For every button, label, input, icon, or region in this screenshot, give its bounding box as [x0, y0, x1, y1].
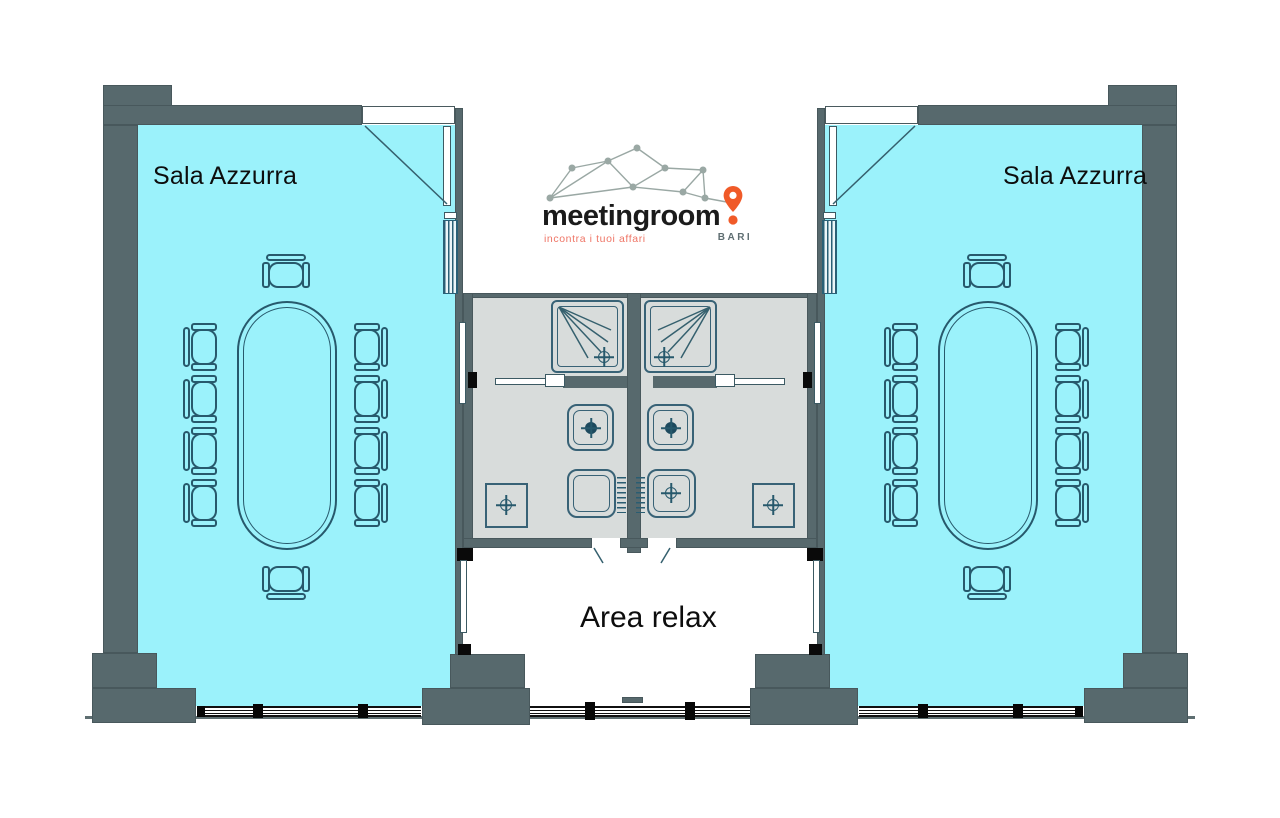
- door-jamb: [458, 644, 471, 655]
- chair: [183, 325, 223, 369]
- window-mullion: [685, 702, 695, 720]
- hatch-marks: [617, 477, 626, 513]
- bathroom-divider-wall: [627, 293, 641, 553]
- window-center: [530, 706, 750, 717]
- door-opening-right-room: [825, 106, 918, 124]
- window-left: [197, 706, 421, 717]
- chair: [884, 325, 924, 369]
- shower-drain-icon: [598, 351, 610, 363]
- door-opening-left-room: [362, 106, 455, 124]
- bathroom-partition-left: [563, 376, 627, 388]
- pillar-bottom-right: [1123, 653, 1188, 688]
- shower-drain-icon: [658, 351, 670, 363]
- sliding-door-left-panel: [545, 374, 565, 387]
- chair: [965, 254, 1009, 294]
- pillar-bottom-center-left: [450, 654, 525, 688]
- door-leaf-bath-right: [814, 322, 821, 404]
- wall-top-left: [103, 105, 362, 125]
- chair: [348, 429, 388, 473]
- floor-drain-icon: [500, 499, 512, 511]
- bathroom-wall-bottom: [620, 538, 648, 548]
- shower-right: [644, 300, 717, 373]
- pillar-bottom-center-right: [755, 654, 830, 688]
- door-jamb: [809, 644, 822, 655]
- oval-table-left-room: [237, 301, 337, 550]
- location-pin-icon: [724, 186, 743, 225]
- shower-left: [551, 300, 624, 373]
- wall-right: [1142, 125, 1177, 653]
- washbasin-left: [567, 469, 616, 518]
- chair: [264, 254, 308, 294]
- pillar-bottom-left: [92, 688, 196, 723]
- window-end-cap: [1075, 706, 1083, 717]
- chair: [1049, 325, 1089, 369]
- door-jamb: [468, 372, 477, 388]
- relax-area-label: Area relax: [580, 601, 717, 635]
- pillar-bottom-right: [1084, 688, 1188, 723]
- window-mullion: [253, 704, 263, 718]
- brand-city: BARI: [714, 232, 756, 243]
- threshold-mark: [622, 697, 643, 703]
- chair: [264, 560, 308, 600]
- window-right: [859, 706, 1083, 717]
- wall-left: [103, 125, 138, 653]
- brand-tagline: incontra i tuoi affari: [544, 233, 646, 245]
- window-mullion: [358, 704, 368, 718]
- chair: [183, 429, 223, 473]
- chair: [183, 481, 223, 525]
- room-label-right: Sala Azzurra: [1003, 162, 1147, 191]
- radiator-cap: [823, 212, 836, 219]
- chair: [348, 325, 388, 369]
- floor-plan: Sala Azzurra Sala Azzurra Area relax mee…: [0, 0, 1280, 818]
- radiator-right-room: [822, 220, 837, 294]
- door-swing-line: [661, 548, 670, 563]
- toilet-crosshair-icon: [665, 422, 677, 434]
- radiator-cap: [444, 212, 457, 219]
- chair: [1049, 481, 1089, 525]
- network-nodes: [547, 145, 709, 202]
- pillar-bottom-center-right: [750, 688, 858, 725]
- chair: [1049, 377, 1089, 421]
- door-leaf-right-room: [829, 126, 837, 206]
- chair: [183, 377, 223, 421]
- window-end-cap: [197, 706, 205, 717]
- chair: [884, 377, 924, 421]
- chair: [884, 429, 924, 473]
- logo: meetingroom incontra i tuoi affari BARI: [538, 140, 750, 248]
- door-leaf-relax-left: [460, 560, 467, 633]
- hatch-marks: [636, 477, 645, 513]
- washbasin-drain-icon: [665, 487, 677, 499]
- chair: [965, 560, 1009, 600]
- radiator-left-room: [443, 220, 458, 294]
- chair: [884, 481, 924, 525]
- door-leaf-left-room: [443, 126, 451, 206]
- chair: [348, 481, 388, 525]
- brand-name: meetingroom: [542, 200, 720, 233]
- sliding-door-right-panel: [715, 374, 735, 387]
- door-leaf-bath-left: [459, 322, 466, 404]
- door-jamb: [803, 372, 812, 388]
- pillar-bottom-left: [92, 653, 157, 688]
- toilet-crosshair-icon: [585, 422, 597, 434]
- door-leaf-relax-right: [813, 560, 820, 633]
- window-mullion: [918, 704, 928, 718]
- window-mullion: [585, 702, 595, 720]
- bathroom-wall-bottom: [676, 538, 817, 548]
- chair: [1049, 429, 1089, 473]
- door-swing-line: [594, 548, 603, 563]
- chair: [348, 377, 388, 421]
- floor-drain-icon: [767, 499, 779, 511]
- window-mullion: [1013, 704, 1023, 718]
- pillar-bottom-center-left: [422, 688, 530, 725]
- bathroom-wall-bottom: [463, 538, 592, 548]
- oval-table-right-room: [938, 301, 1038, 550]
- wall-top-right: [918, 105, 1177, 125]
- bathroom-partition-right: [653, 376, 717, 388]
- room-label-left: Sala Azzurra: [153, 162, 297, 191]
